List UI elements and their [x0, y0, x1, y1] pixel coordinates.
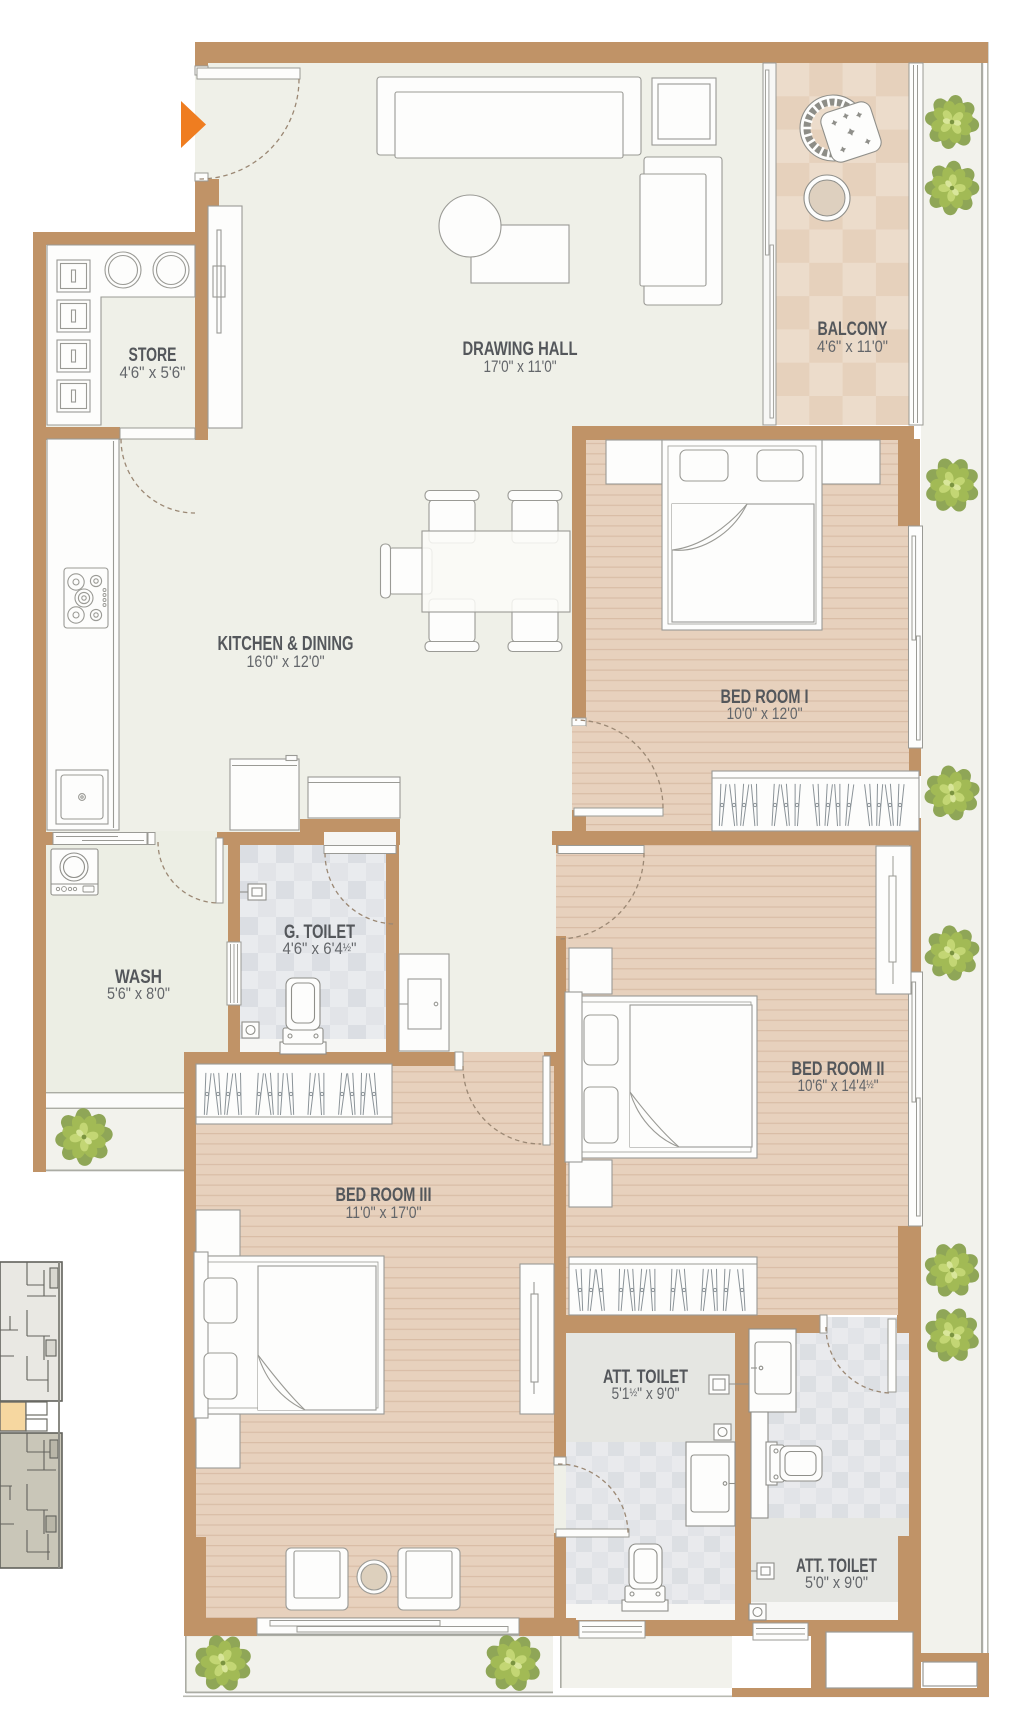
svg-text:4'6" x 5'6": 4'6" x 5'6": [120, 364, 186, 382]
svg-text:17'0" x 11'0": 17'0" x 11'0": [484, 358, 557, 376]
svg-text:BED ROOM III: BED ROOM III: [336, 1185, 432, 1206]
svg-text:5'6" x 8'0": 5'6" x 8'0": [107, 985, 170, 1003]
svg-text:10'0" x 12'0": 10'0" x 12'0": [727, 705, 803, 723]
svg-text:4'6" x 11'0": 4'6" x 11'0": [817, 338, 888, 356]
svg-text:11'0" x 17'0": 11'0" x 17'0": [346, 1204, 422, 1222]
svg-text:STORE: STORE: [129, 345, 177, 366]
svg-text:KITCHEN & DINING: KITCHEN & DINING: [218, 633, 354, 655]
svg-text:16'0" x 12'0": 16'0" x 12'0": [247, 653, 325, 671]
svg-text:5'1½" x 9'0": 5'1½" x 9'0": [612, 1385, 680, 1403]
svg-text:DRAWING HALL: DRAWING HALL: [463, 339, 578, 360]
svg-text:BALCONY: BALCONY: [818, 319, 888, 340]
svg-text:5'0" x 9'0": 5'0" x 9'0": [805, 1574, 868, 1592]
